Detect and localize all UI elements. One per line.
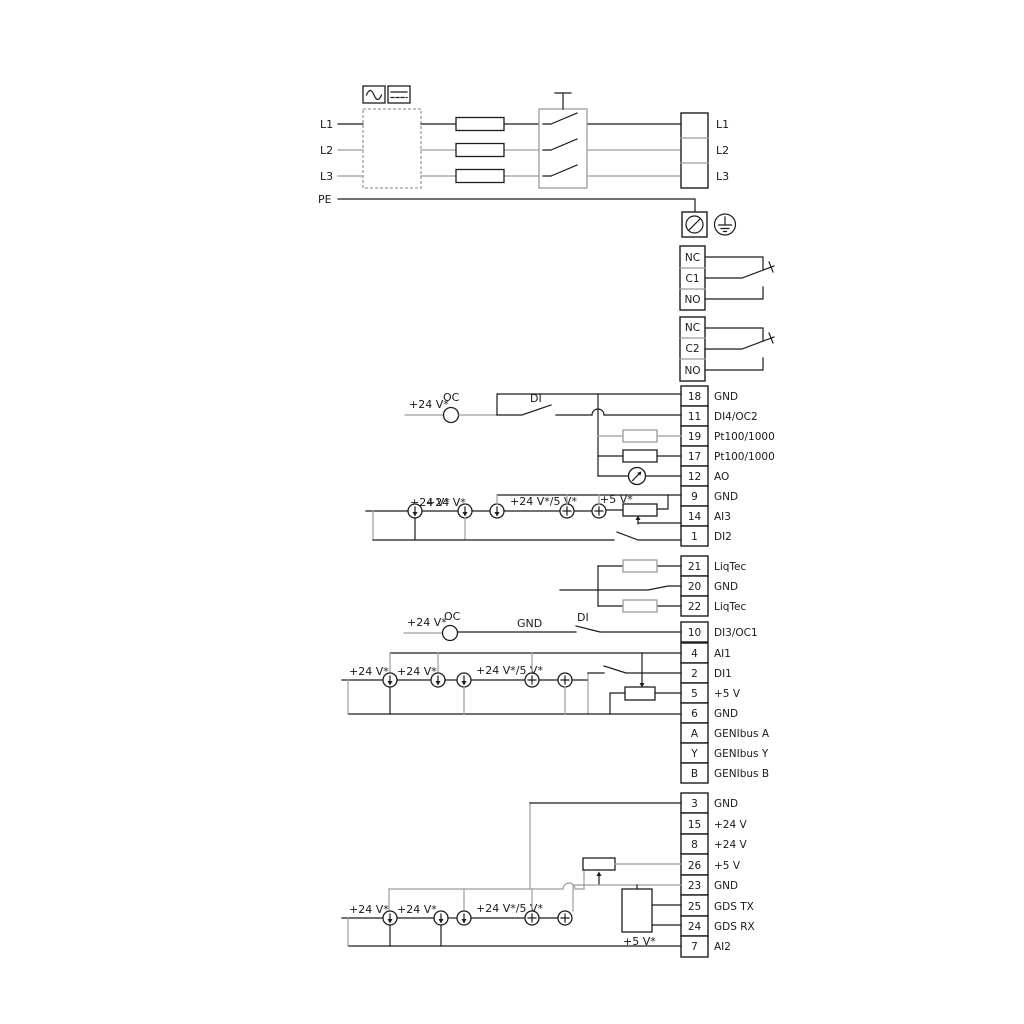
mains-output-l1-label: L1 [716,118,729,131]
terminal-6-label: GND [714,708,738,720]
terminal-6: 6 [691,708,698,720]
potentiometer-ai3 [623,504,657,516]
terminal-9: 9 [691,491,698,503]
terminal-26-label: +5 V [714,860,741,872]
gds-sensor-box [622,889,652,932]
v24-label-5: +24 V* [349,665,389,678]
terminal-B-label: GENIbus B [714,768,769,780]
terminal-21: 21 [688,561,701,573]
terminal-10-label: DI3/OC1 [714,627,758,639]
terminal-26: 26 [688,860,702,872]
ai2-gds-circuit: +24 V* +24 V* +24 V*/5 V* +5 V* [342,803,681,948]
analog-output-meter-icon [629,468,646,485]
v24-label-6: +24 V* [397,665,437,678]
terminal-B: B [691,768,698,780]
terminal-Y-label: GENIbus Y [714,748,769,760]
terminal-12: 12 [688,471,701,483]
pe-label: PE [318,193,332,206]
di4-oc2-circuit: +24 V* OC DI [405,391,681,485]
liqtec-sensor-1 [623,560,657,572]
relay-2: NC C2 NO [680,317,774,381]
voltage-source-icon [592,504,606,518]
voltage-source-icon [560,504,574,518]
pt100-sensor-2 [623,450,657,462]
voltage-source-icon [525,911,539,925]
mains-output-l2-label: L2 [716,144,729,157]
current-source-icon [383,911,397,925]
terminal-8: 8 [691,839,698,851]
terminal-5: 5 [691,688,698,700]
terminal-15-label: +24 V [714,819,747,831]
terminal-2: 2 [691,668,698,680]
relay2-no-label: NO [684,365,700,377]
terminal-23-label: GND [714,880,738,892]
current-source-icon [383,673,397,687]
current-source-icon [457,911,471,925]
terminal-1-label: DI2 [714,531,732,543]
terminal-25-label: GDS TX [714,901,754,913]
terminal-24-label: GDS RX [714,921,755,933]
terminal-4-label: AI1 [714,648,731,660]
oc-source-icon [443,626,458,641]
filter-dashed-box [363,109,421,188]
terminal-14-label: AI3 [714,511,731,523]
earth-icon [715,214,736,235]
pe-section [338,199,736,237]
mains-section: L1 L2 L3 PE [318,86,729,206]
terminal-25: 25 [688,901,701,913]
current-source-icon [408,504,422,518]
fuse-l3 [456,170,504,183]
terminal-19-label: Pt100/1000 [714,431,775,443]
voltage-source-icon [525,673,539,687]
io-group-3-block: 4 AI1 2 DI1 5 +5 V 6 GND A GENIbus A Y G… [681,643,770,783]
terminal-22-label: LiqTec [714,601,747,613]
di-label-2: DI [577,611,589,624]
potentiometer-ai2 [583,858,615,870]
relay-1: NC C1 NO [680,246,774,310]
terminal-17-label: Pt100/1000 [714,451,775,463]
mains-input-l1-label: L1 [320,118,333,131]
liqtec-sensor-2 [623,600,657,612]
gnd-wire-label: GND [517,617,542,630]
current-source-icon [490,504,504,518]
relay2-nc-label: NC [685,322,700,334]
terminal-A: A [691,728,699,740]
current-source-icon [431,673,445,687]
terminal-10: 10 [688,627,701,639]
terminal-20-label: GND [714,581,738,593]
terminal-22: 22 [688,601,701,613]
terminal-23: 23 [688,880,701,892]
relay1-nc-label: NC [685,252,700,264]
terminal-24: 24 [688,921,702,933]
terminal-7: 7 [691,941,698,953]
fuse-l1 [456,118,504,131]
terminal-14: 14 [688,511,702,523]
liqtec-block: 21 LiqTec 20 GND 22 LiqTec [560,556,747,616]
terminal-17: 17 [688,451,701,463]
v24-label-8: +24 V* [397,903,437,916]
oc-label-2: OC [444,610,461,623]
relay1-no-label: NO [684,294,700,306]
mains-output-l3-label: L3 [716,170,729,183]
terminal-21-label: LiqTec [714,561,747,573]
ai1-di1-circuit: +24 V* +24 V* +24 V*/5 V* [342,653,681,714]
terminal-12-label: AO [714,471,729,483]
terminal-18: 18 [688,391,701,403]
di-label-1: DI [530,392,542,405]
v24-label-7: +24 V* [349,903,389,916]
dc-symbol-box [388,86,410,103]
terminal-20: 20 [688,581,701,593]
mains-input-l3-label: L3 [320,170,333,183]
terminal-4: 4 [691,648,698,660]
terminal-5-label: +5 V [714,688,741,700]
terminal-8-label: +24 V [714,839,747,851]
wiring-diagram-page: L1 L2 L3 PE [0,0,1024,1024]
voltage-source-icon [558,911,572,925]
potentiometer-ai1 [625,687,655,700]
oc-label-1: OC [443,391,460,404]
mains-output-block: L1 L2 L3 [681,113,729,188]
terminal-18-label: GND [714,391,738,403]
oc-source-icon [444,408,459,423]
terminal-9-label: GND [714,491,738,503]
voltage-source-icon [558,673,572,687]
main-switch [539,93,587,188]
io-group-4-block: 3 GND 15 +24 V 8 +24 V 26 +5 V 23 GND 25… [681,793,755,957]
fuse-l2 [456,144,504,157]
terminal-19: 19 [688,431,701,443]
terminal-3-label: GND [714,798,738,810]
current-source-icon [458,504,472,518]
terminal-11-label: DI4/OC2 [714,411,758,423]
current-source-icon [434,911,448,925]
current-source-icon [457,673,471,687]
terminal-2-label: DI1 [714,668,732,680]
relay1-c1-label: C1 [685,273,699,285]
terminal-A-label: GENIbus A [714,728,770,740]
mains-input-l2-label: L2 [320,144,333,157]
ai3-di2-circuit: +24 V* +24 V* +24 V*/5 V* +5 V* [366,493,681,540]
ac-symbol-box [363,86,385,103]
terminal-1: 1 [691,531,698,543]
pt100-sensor-1 [623,430,657,442]
relay2-c2-label: C2 [685,343,699,355]
terminal-3: 3 [691,798,698,810]
terminal-15: 15 [688,819,701,831]
v24-label-4: +24 V* [407,616,447,629]
wiring-diagram: L1 L2 L3 PE [0,0,1024,1024]
terminal-7-label: AI2 [714,941,731,953]
terminal-11: 11 [688,411,701,423]
io-group-1-block: 18 GND 11 DI4/OC2 19 Pt100/1000 17 Pt100… [681,386,775,546]
terminal-Y: Y [690,748,698,760]
